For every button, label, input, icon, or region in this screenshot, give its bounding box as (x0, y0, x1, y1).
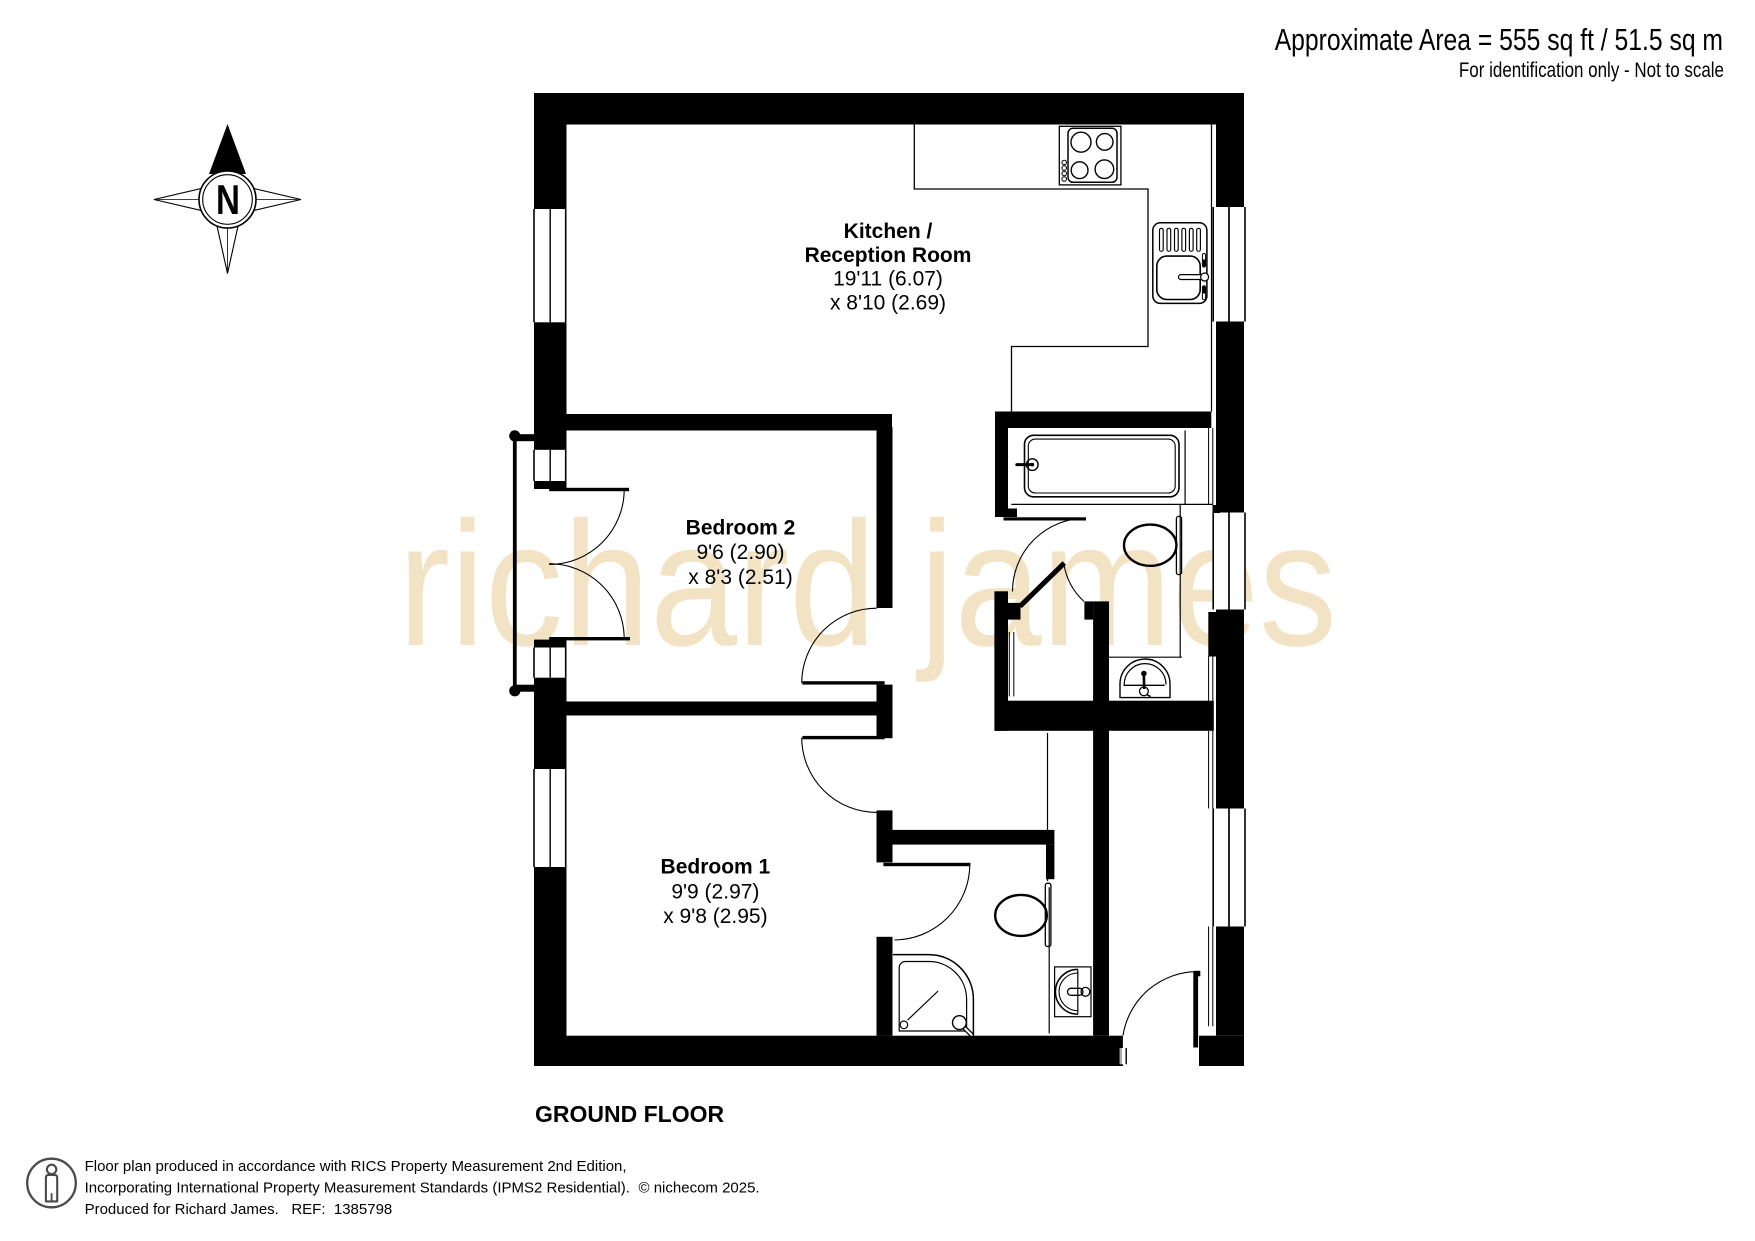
svg-text:9'9 (2.97): 9'9 (2.97) (671, 881, 759, 904)
svg-text:x 8'3 (2.51): x 8'3 (2.51) (688, 566, 792, 589)
svg-text:Kitchen /: Kitchen / (844, 220, 933, 243)
svg-text:© nichecom 2025.: © nichecom 2025. (639, 1179, 760, 1196)
svg-text:19'11 (6.07): 19'11 (6.07) (833, 268, 943, 291)
svg-text:Incorporating International Pr: Incorporating International Property Mea… (85, 1179, 630, 1196)
svg-text:x 9'8 (2.95): x 9'8 (2.95) (663, 905, 767, 928)
svg-text:x 8'10 (2.69): x 8'10 (2.69) (830, 292, 946, 315)
svg-text:N: N (216, 177, 240, 224)
svg-text:Reception Room: Reception Room (805, 244, 972, 267)
svg-text:GROUND FLOOR: GROUND FLOOR (535, 1101, 724, 1127)
svg-text:Floor plan produced in accorda: Floor plan produced in accordance with R… (85, 1158, 627, 1175)
svg-text:Produced for Richard James.: Produced for Richard James. REF: 1385798 (85, 1201, 393, 1218)
svg-text:Bedroom 1: Bedroom 1 (661, 856, 771, 879)
svg-text:Bedroom 2: Bedroom 2 (686, 516, 796, 539)
svg-text:9'6 (2.90): 9'6 (2.90) (696, 541, 784, 564)
svg-text:For identification only - Not: For identification only - Not to scale (1459, 58, 1724, 82)
svg-text:Approximate Area = 555 sq ft /: Approximate Area = 555 sq ft / 51.5 sq m (1275, 23, 1723, 57)
